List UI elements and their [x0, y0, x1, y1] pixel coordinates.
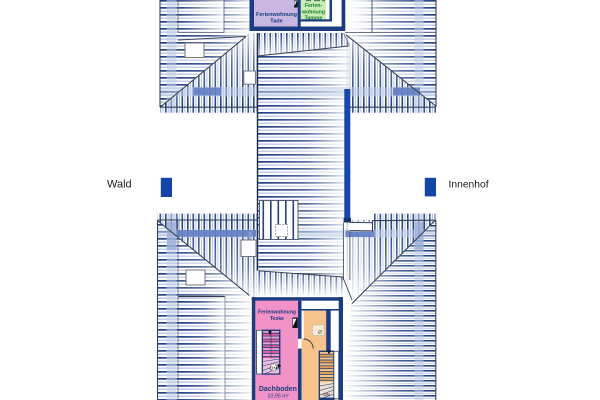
svg-text:Dachboden: Dachboden — [259, 386, 297, 393]
svg-text:Innenhof: Innenhof — [449, 180, 489, 191]
svg-text:Wald: Wald — [107, 179, 132, 191]
svg-text:10,95 m²: 10,95 m² — [267, 394, 288, 400]
svg-text:Ferienwohnung: Ferienwohnung — [256, 12, 297, 18]
svg-text:DN: DN — [323, 392, 329, 397]
svg-text:Tamme: Tamme — [305, 15, 323, 21]
svg-text:Tade: Tade — [270, 19, 282, 25]
svg-text:DN: DN — [270, 365, 277, 370]
svg-text:Ferien-: Ferien- — [305, 3, 323, 9]
svg-text:Teske: Teske — [270, 316, 284, 322]
svg-text:Ferienwohnung: Ferienwohnung — [258, 309, 296, 315]
